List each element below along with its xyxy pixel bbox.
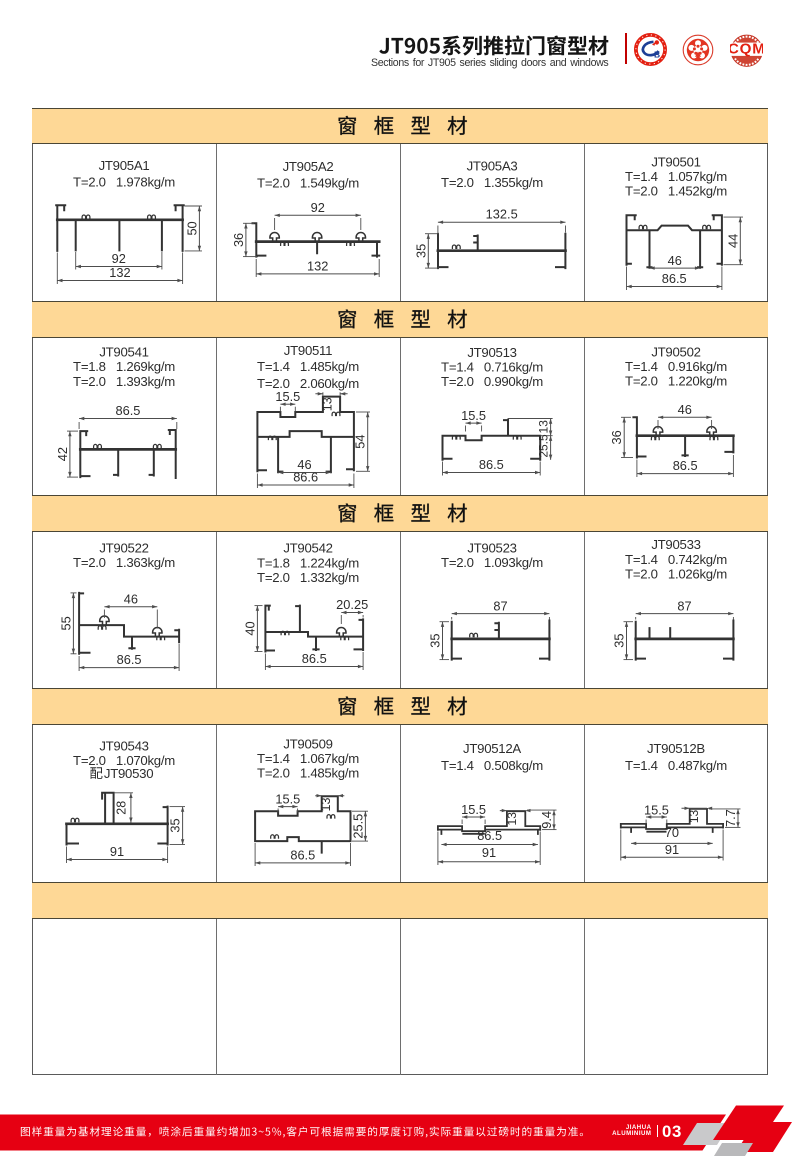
svg-text:36: 36 (231, 233, 246, 247)
svg-text:T=1.4 0.716kg/m: T=1.4 0.716kg/m (441, 360, 543, 375)
svg-text:15.5: 15.5 (461, 408, 486, 423)
svg-text:T=1.4 0.742kg/m: T=1.4 0.742kg/m (625, 552, 727, 567)
svg-text:B: B (654, 50, 660, 60)
svg-text:7.7: 7.7 (723, 809, 738, 827)
svg-text:13: 13 (319, 798, 333, 812)
svg-text:T=1.4 1.057kg/m: T=1.4 1.057kg/m (625, 169, 727, 184)
svg-text:T=2.0 1.452kg/m: T=2.0 1.452kg/m (625, 184, 727, 199)
svg-text:T=2.0 0.990kg/m: T=2.0 0.990kg/m (441, 374, 543, 389)
svg-text:35: 35 (428, 634, 443, 648)
svg-text:JT90509: JT90509 (284, 737, 333, 752)
svg-text:JT90522: JT90522 (100, 541, 149, 556)
svg-text:91: 91 (110, 844, 124, 859)
svg-text:91: 91 (665, 842, 679, 857)
svg-text:T=1.4 1.485kg/m: T=1.4 1.485kg/m (257, 359, 359, 374)
svg-text:T=2.0 1.355kg/m: T=2.0 1.355kg/m (441, 175, 543, 190)
svg-text:T=2.0 1.485kg/m: T=2.0 1.485kg/m (257, 765, 359, 780)
svg-text:13: 13 (505, 812, 519, 826)
svg-text:T=1.4 0.487kg/m: T=1.4 0.487kg/m (625, 758, 727, 773)
svg-text:JT90512B: JT90512B (647, 741, 705, 756)
svg-text:86.5: 86.5 (291, 847, 316, 862)
svg-text:25.5: 25.5 (537, 434, 551, 458)
svg-text:JT90530: JT90530 (104, 766, 153, 781)
svg-text:42: 42 (55, 447, 70, 461)
svg-text:JT90511: JT90511 (284, 343, 332, 358)
svg-text:13: 13 (321, 397, 335, 411)
svg-text:87: 87 (678, 598, 692, 613)
svg-text:15.5: 15.5 (644, 802, 669, 817)
svg-text:JT90502: JT90502 (652, 344, 701, 359)
svg-text:T=1.4 0.916kg/m: T=1.4 0.916kg/m (625, 359, 727, 374)
svg-text:T=2.0 1.363kg/m: T=2.0 1.363kg/m (73, 555, 175, 570)
svg-text:JT90543: JT90543 (100, 738, 149, 753)
svg-text:70: 70 (665, 825, 679, 840)
svg-text:50: 50 (185, 221, 200, 235)
svg-text:55: 55 (59, 616, 74, 630)
svg-text:87: 87 (494, 598, 508, 613)
svg-text:JT90541: JT90541 (100, 344, 149, 359)
svg-text:132.5: 132.5 (486, 207, 518, 222)
svg-text:JT90501: JT90501 (652, 155, 701, 170)
svg-text:13: 13 (537, 420, 551, 434)
svg-text:28: 28 (115, 801, 129, 815)
svg-text:86.5: 86.5 (479, 457, 504, 472)
svg-text:T=1.4 0.508kg/m: T=1.4 0.508kg/m (441, 758, 543, 773)
svg-text:132: 132 (110, 265, 131, 280)
svg-text:86.6: 86.6 (294, 470, 319, 485)
svg-text:86.5: 86.5 (116, 403, 141, 418)
svg-text:86.5: 86.5 (302, 651, 327, 666)
svg-text:JT90523: JT90523 (468, 541, 517, 556)
svg-text:92: 92 (112, 251, 126, 266)
svg-text:T=1.8 1.269kg/m: T=1.8 1.269kg/m (73, 359, 175, 374)
svg-text:15.5: 15.5 (276, 389, 301, 404)
svg-text:T=2.0 1.549kg/m: T=2.0 1.549kg/m (257, 176, 359, 191)
svg-text:20.25: 20.25 (337, 597, 369, 612)
svg-text:JT90533: JT90533 (652, 537, 701, 552)
svg-text:13: 13 (687, 810, 701, 824)
svg-text:132: 132 (307, 258, 328, 273)
svg-text:T=2.0 1.393kg/m: T=2.0 1.393kg/m (73, 374, 175, 389)
svg-text:35: 35 (612, 634, 627, 648)
svg-text:86.5: 86.5 (673, 458, 698, 473)
svg-text:JT905A2: JT905A2 (283, 159, 334, 174)
svg-text:JT90542: JT90542 (284, 541, 333, 556)
svg-text:CQM: CQM (730, 41, 764, 58)
svg-text:T=2.0 1.332kg/m: T=2.0 1.332kg/m (257, 570, 359, 585)
svg-text:86.5: 86.5 (117, 652, 142, 667)
svg-text:9.4: 9.4 (539, 811, 554, 829)
svg-text:86.5: 86.5 (662, 271, 687, 286)
svg-text:46: 46 (668, 253, 682, 268)
svg-text:40: 40 (243, 621, 258, 635)
svg-text:44: 44 (726, 234, 741, 248)
svg-text:46: 46 (678, 402, 692, 417)
svg-text:T=1.8 1.224kg/m: T=1.8 1.224kg/m (257, 556, 359, 571)
svg-text:86.5: 86.5 (478, 828, 503, 843)
svg-text:JT90513: JT90513 (468, 345, 517, 360)
svg-text:35: 35 (168, 818, 183, 832)
svg-text:92: 92 (311, 200, 325, 215)
svg-text:54: 54 (353, 435, 368, 449)
svg-text:JT90512A: JT90512A (463, 741, 521, 756)
svg-text:JT905A1: JT905A1 (99, 158, 150, 173)
svg-text:46: 46 (124, 591, 138, 606)
svg-text:T=1.4 1.067kg/m: T=1.4 1.067kg/m (257, 751, 359, 766)
svg-text:T=2.0 2.060kg/m: T=2.0 2.060kg/m (257, 376, 359, 391)
svg-text:15.5: 15.5 (462, 802, 487, 817)
svg-text:T=2.0 1.093kg/m: T=2.0 1.093kg/m (441, 555, 543, 570)
svg-text:91: 91 (482, 845, 496, 860)
svg-text:JT905A3: JT905A3 (467, 159, 518, 174)
svg-text:T=2.0 1.220kg/m: T=2.0 1.220kg/m (625, 374, 727, 389)
svg-text:T=2.0 1.978kg/m: T=2.0 1.978kg/m (73, 175, 175, 190)
svg-text:T=2.0 1.026kg/m: T=2.0 1.026kg/m (625, 567, 727, 582)
svg-text:35: 35 (414, 244, 429, 258)
svg-text:36: 36 (610, 430, 625, 444)
svg-text:25.5: 25.5 (351, 814, 366, 839)
svg-text:15.5: 15.5 (276, 791, 301, 806)
